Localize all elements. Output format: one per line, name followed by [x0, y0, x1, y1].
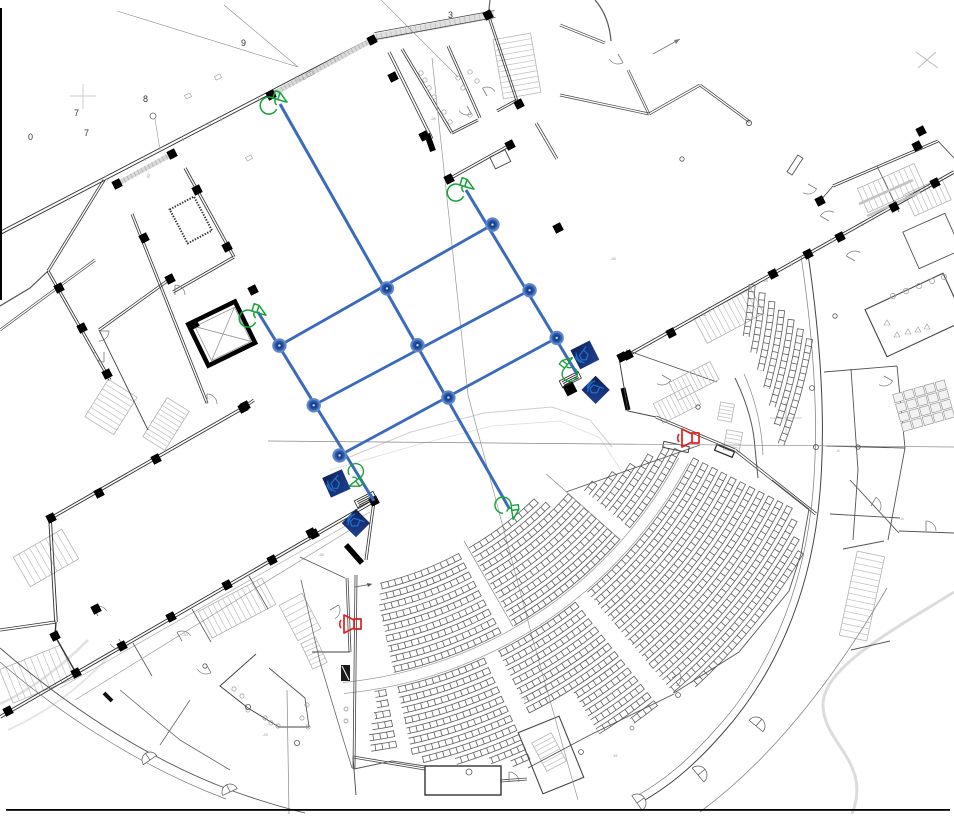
svg-text:-28: -28 — [762, 278, 769, 283]
svg-text:-28: -28 — [318, 552, 325, 557]
svg-text:0: 0 — [28, 132, 33, 142]
svg-text:3: 3 — [448, 10, 453, 20]
svg-text:7: 7 — [84, 128, 89, 138]
svg-text:9: 9 — [241, 38, 246, 48]
svg-text:7: 7 — [74, 108, 79, 118]
svg-text:-28: -28 — [430, 116, 437, 121]
svg-text:-25: -25 — [262, 732, 269, 737]
svg-text:-28: -28 — [610, 256, 617, 261]
svg-text:8: 8 — [143, 94, 148, 104]
svg-text:15: 15 — [613, 753, 618, 758]
svg-text:-28: -28 — [700, 312, 707, 317]
svg-text:-30: -30 — [205, 121, 212, 126]
svg-text:-26: -26 — [858, 222, 865, 227]
svg-text:-30: -30 — [300, 76, 307, 81]
